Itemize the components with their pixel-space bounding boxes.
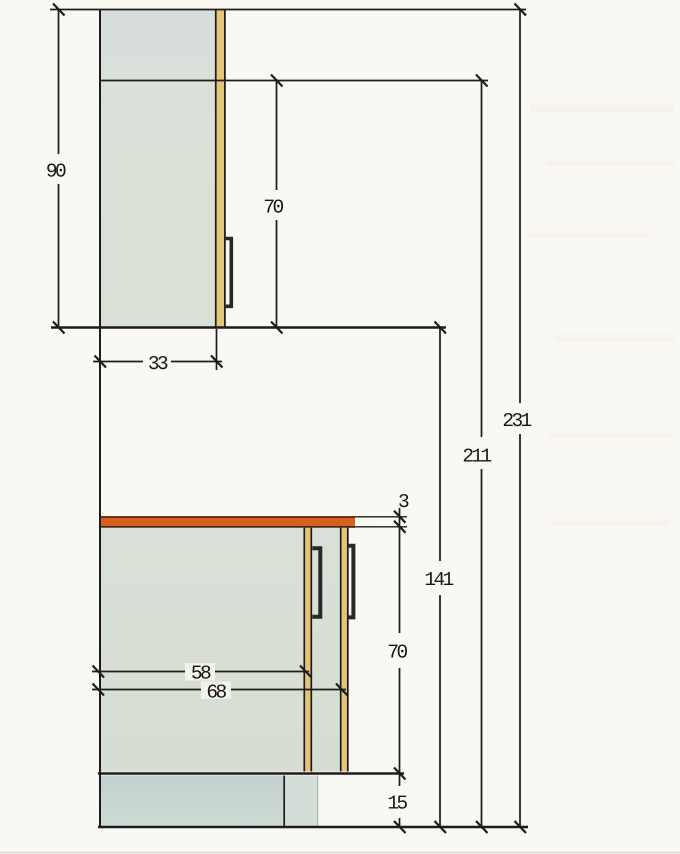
svg-text:70: 70 xyxy=(387,642,407,664)
svg-text:141: 141 xyxy=(424,569,453,591)
svg-text:90: 90 xyxy=(46,161,66,183)
svg-text:15: 15 xyxy=(387,793,407,815)
svg-text:68: 68 xyxy=(206,682,226,704)
svg-text:231: 231 xyxy=(502,410,531,432)
svg-text:33: 33 xyxy=(148,353,168,375)
svg-text:211: 211 xyxy=(462,446,491,468)
svg-text:70: 70 xyxy=(263,197,283,219)
